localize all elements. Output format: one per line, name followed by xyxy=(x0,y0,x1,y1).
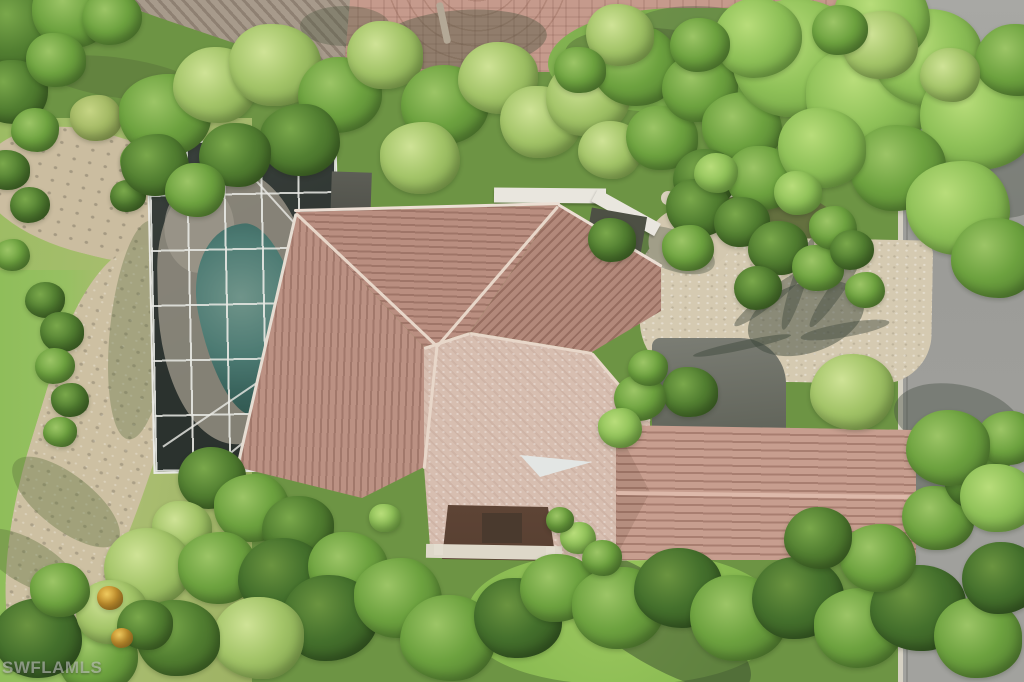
tree-canopy xyxy=(920,48,980,102)
tree-canopy xyxy=(43,417,77,448)
tree-canopy xyxy=(845,272,885,308)
watermark: SWFLAMLS xyxy=(2,658,102,678)
tree-canopy xyxy=(26,33,86,87)
tree-canopy xyxy=(662,367,718,417)
tree-canopy xyxy=(960,464,1024,532)
tree-canopy xyxy=(628,350,668,386)
tree-canopy xyxy=(546,507,574,532)
tree-canopy xyxy=(598,408,642,448)
tree-canopy xyxy=(40,312,84,352)
tree-canopy xyxy=(810,354,894,430)
tree-canopy xyxy=(380,122,460,194)
tree-canopy xyxy=(694,153,738,193)
tree-canopy xyxy=(962,542,1024,614)
tree-canopy xyxy=(165,163,225,217)
flowering-palm xyxy=(97,586,123,609)
entry-door xyxy=(482,513,522,543)
tree-canopy xyxy=(11,108,59,151)
tree-canopy xyxy=(30,563,90,617)
tree-canopy xyxy=(51,383,89,417)
tree-canopy xyxy=(774,171,822,214)
tree-canopy xyxy=(662,225,714,272)
aerial-photo: SWFLAMLS xyxy=(0,0,1024,682)
flowering-palm xyxy=(111,628,133,648)
tree-canopy xyxy=(582,540,622,576)
tree-canopy xyxy=(734,266,782,309)
tree-canopy xyxy=(554,47,606,94)
tree-canopy xyxy=(369,504,401,533)
tree-canopy xyxy=(830,230,874,270)
porch-pillar xyxy=(434,544,443,555)
tree-canopy xyxy=(588,218,636,261)
tree-canopy xyxy=(784,507,852,568)
tree-canopy xyxy=(82,0,142,45)
tree-canopy xyxy=(70,95,122,142)
tree-canopy xyxy=(260,104,340,176)
tree-canopy xyxy=(212,597,304,680)
